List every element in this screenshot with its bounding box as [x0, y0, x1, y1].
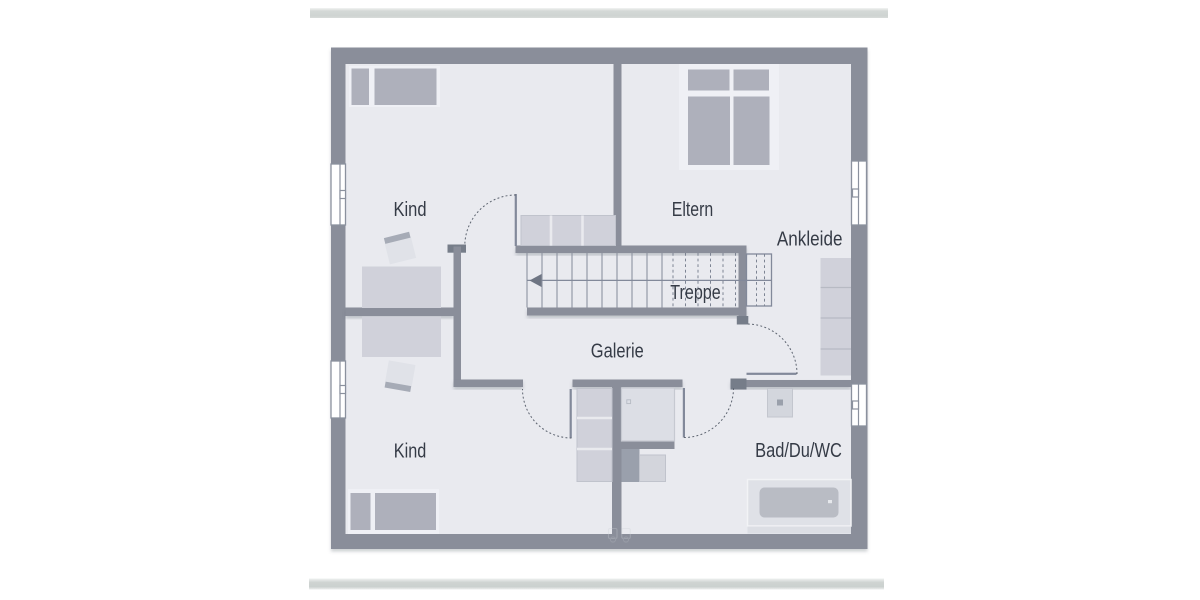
- svg-text:Eltern: Eltern: [672, 198, 714, 221]
- svg-text:Ankleide: Ankleide: [777, 227, 843, 250]
- svg-text:Galerie: Galerie: [591, 339, 644, 362]
- svg-text:Bad/Du/WC: Bad/Du/WC: [755, 439, 842, 462]
- svg-text:Kind: Kind: [394, 198, 427, 221]
- svg-text:Treppe: Treppe: [670, 281, 721, 304]
- svg-text:Kind: Kind: [394, 440, 427, 463]
